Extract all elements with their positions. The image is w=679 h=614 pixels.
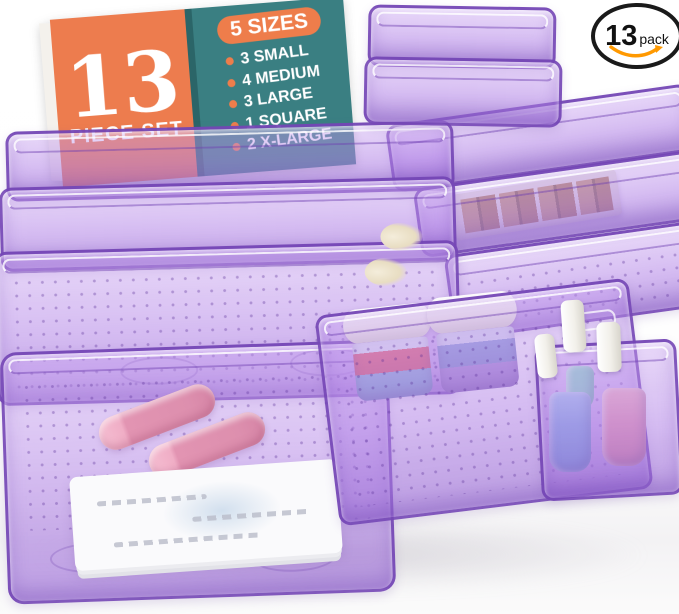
- pack-count-badge: 13 pack: [591, 3, 679, 69]
- bullet-dot-icon: [225, 57, 234, 66]
- polish-cap: [560, 299, 587, 352]
- piece-count: 13: [63, 47, 182, 125]
- polish-cap: [596, 322, 622, 373]
- paper-pad: [69, 459, 343, 571]
- bin-small-2: [363, 56, 562, 127]
- product-image: 13 PIECE SET 5 SIZES 3 SMALL 4 MEDIUM 3 …: [0, 0, 679, 614]
- bullet-dot-icon: [227, 78, 236, 87]
- smile-arrow-icon: [607, 44, 667, 60]
- bullet-dot-icon: [229, 100, 238, 109]
- sizes-title: 5 SIZES: [216, 6, 323, 46]
